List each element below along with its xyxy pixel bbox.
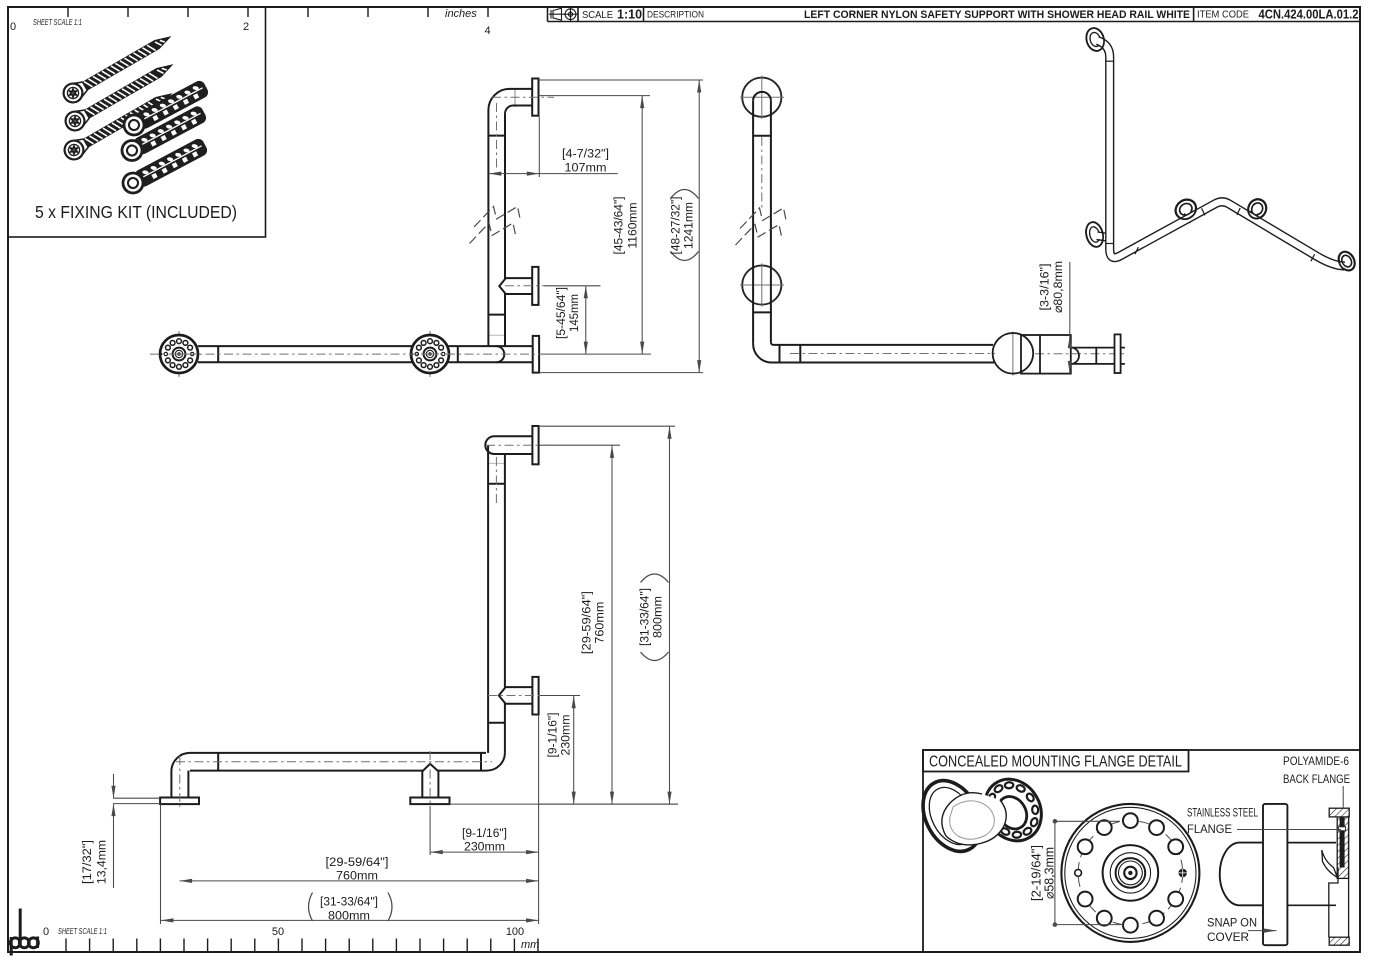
svg-text:50: 50 [272, 926, 284, 938]
svg-text:1:10: 1:10 [617, 8, 642, 22]
svg-text:[17/32"]: [17/32"] [80, 840, 94, 884]
svg-text:230mm: 230mm [559, 715, 573, 756]
svg-text:800mm: 800mm [651, 596, 665, 638]
svg-text:0: 0 [10, 21, 16, 33]
svg-text:[29-59/64"]: [29-59/64"] [580, 591, 594, 654]
svg-text:230mm: 230mm [464, 840, 505, 854]
svg-text:inches: inches [445, 8, 477, 20]
svg-text:[48-27/32"]: [48-27/32"] [668, 197, 682, 255]
svg-text:1160mm: 1160mm [625, 203, 639, 249]
svg-text:FLANGE: FLANGE [1187, 822, 1232, 836]
svg-text:4: 4 [484, 25, 490, 37]
svg-text:[45-43/64"]: [45-43/64"] [612, 197, 626, 255]
svg-text:[2-19/64"]: [2-19/64"] [1030, 845, 1044, 901]
svg-text:mm: mm [521, 939, 539, 951]
svg-text:CONCEALED MOUNTING FLANGE DETA: CONCEALED MOUNTING FLANGE DETAIL [929, 754, 1182, 771]
svg-text:⌀80,8mm: ⌀80,8mm [1051, 261, 1065, 313]
svg-text:COVER: COVER [1207, 930, 1249, 944]
svg-text:100: 100 [506, 926, 524, 938]
svg-text:SHEET SCALE 1:1: SHEET SCALE 1:1 [58, 926, 107, 936]
svg-text:SCALE: SCALE [582, 9, 613, 21]
svg-text:DESCRIPTION: DESCRIPTION [647, 10, 704, 21]
svg-text:[5-45/64"]: [5-45/64"] [554, 287, 568, 339]
svg-text:760mm: 760mm [593, 602, 607, 644]
svg-text:[3-3/16"]: [3-3/16"] [1038, 264, 1052, 311]
svg-text:145mm: 145mm [567, 294, 581, 332]
svg-text:[31-33/64"]: [31-33/64"] [638, 588, 652, 646]
svg-text:STAINLESS STEEL: STAINLESS STEEL [1187, 806, 1258, 820]
svg-text:POLYAMIDE-6: POLYAMIDE-6 [1283, 754, 1349, 768]
svg-text:4CN.424.00LA.01.2: 4CN.424.00LA.01.2 [1259, 7, 1359, 22]
svg-text:[9-1/16"]: [9-1/16"] [546, 713, 560, 758]
svg-text:LEFT CORNER NYLON SAFETY SUPPO: LEFT CORNER NYLON SAFETY SUPPORT WITH SH… [804, 9, 1190, 21]
svg-text:5 x FIXING KIT (INCLUDED): 5 x FIXING KIT (INCLUDED) [35, 202, 237, 222]
svg-text:1241mm: 1241mm [681, 202, 695, 249]
svg-text:ITEM CODE: ITEM CODE [1197, 10, 1249, 21]
svg-text:SNAP ON: SNAP ON [1207, 916, 1257, 930]
svg-text:SHEET SCALE 1:1: SHEET SCALE 1:1 [33, 17, 82, 27]
svg-text:0: 0 [43, 926, 49, 938]
svg-text:[29-59/64"]: [29-59/64"] [326, 855, 389, 869]
svg-text:2: 2 [243, 21, 249, 33]
svg-text:800mm: 800mm [328, 909, 370, 923]
svg-text:[4-7/32"]: [4-7/32"] [562, 147, 609, 161]
svg-text:[31-33/64"]: [31-33/64"] [320, 895, 378, 909]
svg-text:⌀58,3mm: ⌀58,3mm [1043, 847, 1057, 899]
svg-text:107mm: 107mm [565, 161, 607, 175]
svg-text:[9-1/16"]: [9-1/16"] [462, 826, 507, 840]
svg-text:760mm: 760mm [336, 869, 378, 883]
svg-text:BACK FLANGE: BACK FLANGE [1283, 772, 1350, 786]
svg-text:13,4mm: 13,4mm [95, 840, 109, 884]
